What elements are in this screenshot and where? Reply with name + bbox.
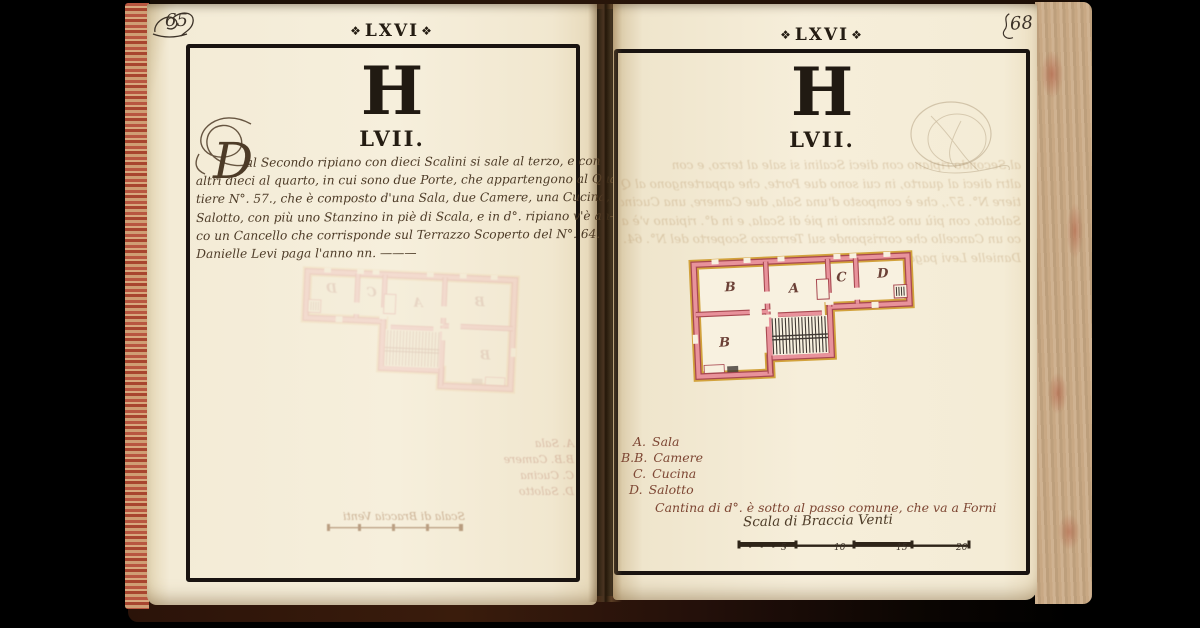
floor-plan [687,245,921,387]
page-right-header-number: LXVI [795,25,849,45]
scale-bar-icon [737,540,975,550]
manuscript-line: co un Cancello che corrisponde sul Terra… [196,225,578,245]
page-left: 65 ❖LXVI❖ H LVII. D al Secondo ripiano c… [147,4,597,605]
folio-paraph-icon [999,12,1015,43]
ornament-icon: ❖ [780,28,793,42]
manuscript-line: Danielle Levi paga l'anno nn. ——— [196,243,578,263]
page-left-number: LVII. [332,126,452,151]
ornament-icon: ❖ [851,28,864,42]
manuscript-line: Salotto, con più uno Stanzino in piè di … [196,207,578,227]
book-left-page-edges [125,3,149,609]
plan-bleedthrough [294,261,521,399]
folio-number-right: 68 [1009,12,1033,35]
page-left-header: ❖LXVI❖ [332,21,452,41]
manuscript-text-block: al Secondo ripiano con dieci Scalini si … [196,152,579,263]
page-left-header-number: LXVI [365,21,419,41]
folio-mark-left: 65 [155,8,178,29]
book-fore-edge [1035,2,1092,604]
manuscript-scan: 65 ❖LXVI❖ H LVII. D al Secondo ripiano c… [0,0,1200,628]
ornament-icon: ❖ [350,24,363,38]
manuscript-line: tiere N°. 57., che è composto d'una Sala… [196,188,578,208]
page-right: ❖LXVI❖ 68 H LVII. al Secondo ripiano con… [613,4,1037,600]
page-right-number: LVII. [762,127,882,152]
page-left-letter: H [332,58,452,124]
manuscript-line: al Secondo ripiano con dieci Scalini si … [196,152,578,172]
legend-bleedthrough: A. Sala B.B. Camere C. Cucina D. Salotto [379,436,574,500]
ornament-icon: ❖ [421,24,434,38]
scale-bleedthrough: Scala di Braccia Venti [315,510,465,536]
scale-label: Scala di Braccia Venti [743,512,893,531]
page-right-header: ❖LXVI❖ [762,25,882,45]
page-right-letter: H [762,59,882,125]
manuscript-line: altri dieci al quarto, in cui sono due P… [196,170,578,190]
scale-bar-bleed-icon [325,523,465,533]
scale-bar: 5 10 15 20 [737,535,977,557]
